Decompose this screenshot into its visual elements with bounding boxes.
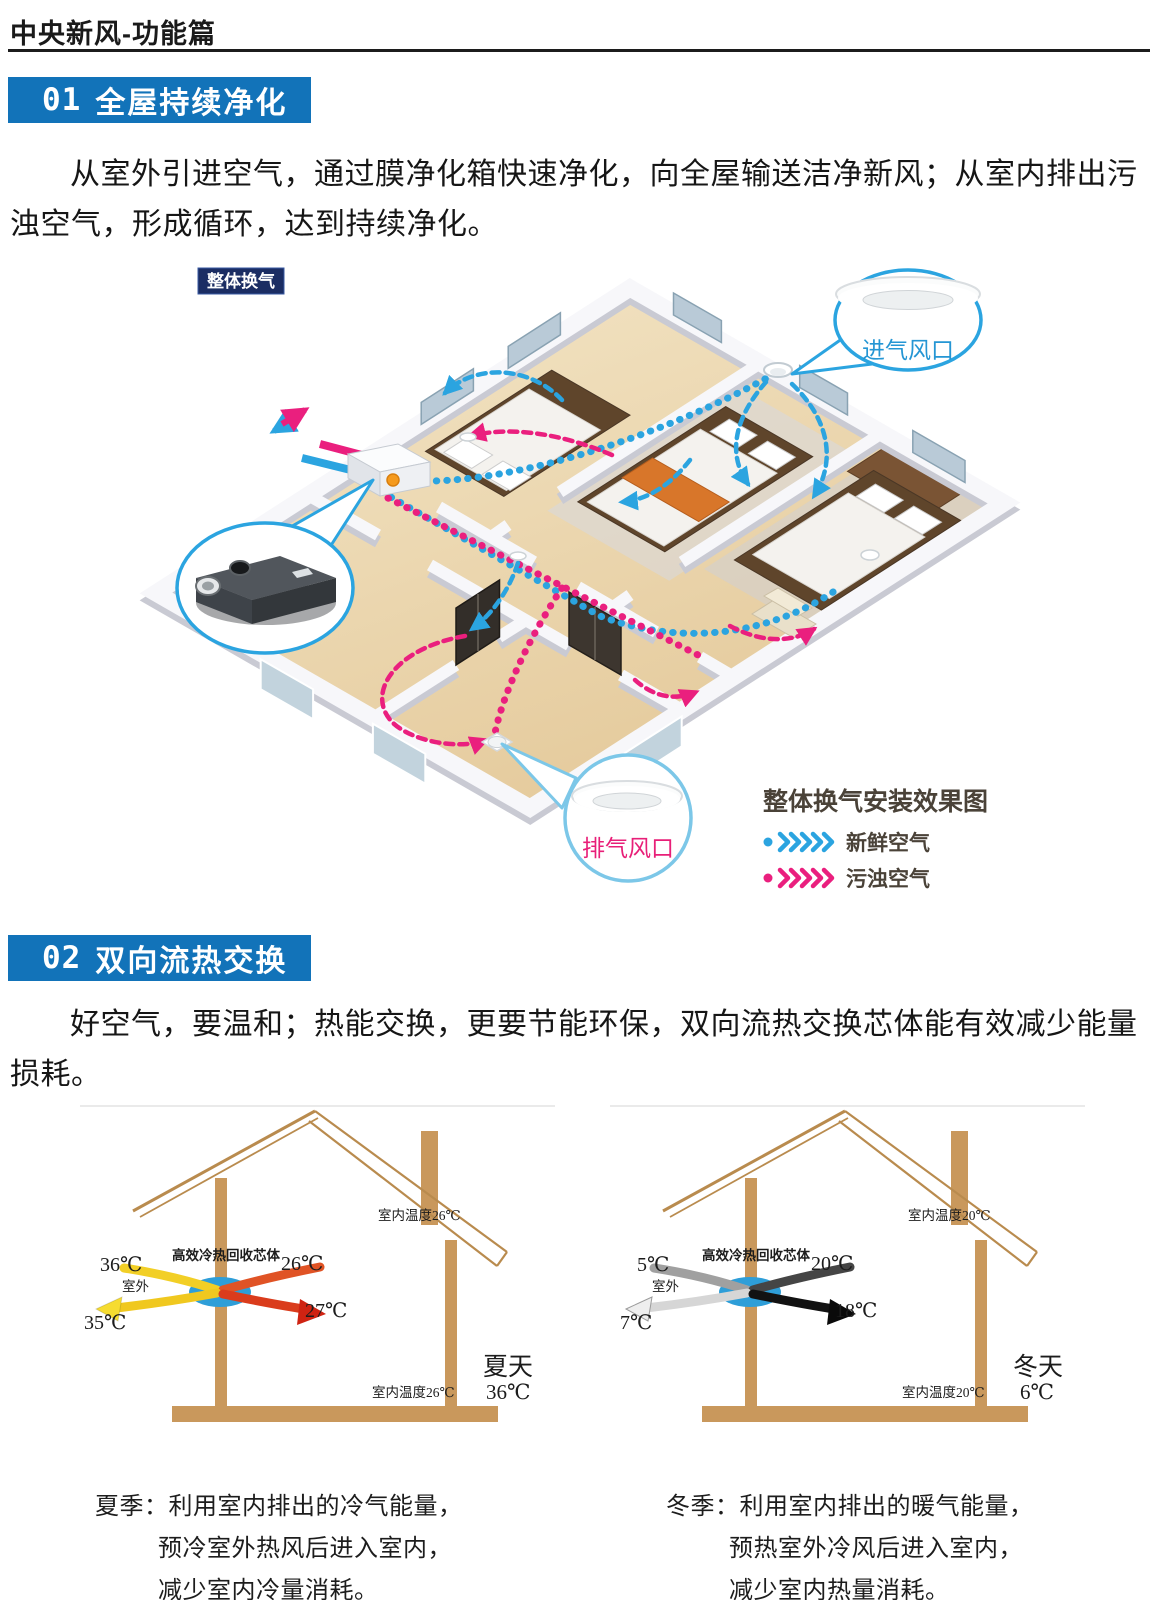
season-temp: 36℃ [486, 1380, 531, 1404]
winter-heat-exchange-diagram: 高效冷热回收芯体 5℃ 室外 7℃ 20℃ 18℃ 室内温度20℃ 室内温度20… [590, 1078, 1090, 1438]
page-title: 中央新风-功能篇 [10, 12, 216, 51]
temp-supply: 27℃ [305, 1300, 347, 1322]
temp-exhaust-out: 35℃ [84, 1312, 126, 1334]
temp-exhaust-out: 7℃ [620, 1312, 652, 1334]
winter-caption-line1: 冬季：利用室内排出的暖气能量， [666, 1486, 1034, 1528]
summer-heat-exchange-diagram: 高效冷热回收芯体 36℃ 室外 35℃ 26℃ 27℃ 室内温度26℃ 室内温度… [60, 1078, 560, 1438]
section1-banner: 01 全屋持续净化 [8, 77, 311, 123]
outdoor-label: 室外 [652, 1278, 680, 1294]
section1-paragraph: 从室外引进空气，通过膜净化箱快速净化，向全屋输送洁净新风；从室内排出污浊空气，形… [10, 150, 1150, 250]
legend-title: 整体换气安装效果图 [763, 787, 988, 816]
whole-house-ventilation-illustration: 整体换气 进气风口 排气风口 [130, 248, 1040, 908]
right-post [975, 1240, 987, 1406]
summer-caption-line2: 预冷室外热风后进入室内， [158, 1528, 463, 1570]
exhaust-callout-label: 排气风口 [582, 835, 674, 861]
intake-callout-label: 进气风口 [862, 337, 954, 363]
section2-banner: 02 双向流热交换 [8, 935, 311, 981]
winter-caption-line3: 减少室内热量消耗。 [729, 1570, 1034, 1600]
summer-caption-line3: 减少室内冷量消耗。 [158, 1570, 463, 1600]
outdoor-label: 室外 [122, 1278, 149, 1294]
section2-number: 02 [42, 940, 81, 976]
brochure-page: 中央新风-功能篇 01 全屋持续净化 从室外引进空气，通过膜净化箱快速净化，向全… [0, 0, 1159, 1600]
season-temp: 6℃ [1020, 1380, 1054, 1404]
unit-port-dark [230, 561, 250, 575]
floor-indoor-temp: 室内温度20℃ [902, 1384, 985, 1400]
header-rule [8, 49, 1150, 52]
legend-polluted-arrow [768, 870, 832, 886]
right-post [445, 1240, 457, 1406]
season-name: 冬天 [1013, 1353, 1063, 1381]
temp-room-top: 26℃ [281, 1253, 323, 1275]
section1-title: 全屋持续净化 [95, 78, 287, 122]
core-label: 高效冷热回收芯体 [172, 1247, 280, 1263]
legend-fresh-label: 新鲜空气 [846, 831, 930, 855]
floor-beam [702, 1406, 1028, 1422]
temp-outdoor-in: 5℃ [637, 1254, 669, 1276]
section1-number: 01 [42, 82, 81, 118]
summer-caption: 夏季：利用室内排出的冷气能量， 预冷室外热风后进入室内， 减少室内冷量消耗。 [95, 1486, 463, 1600]
season-name: 夏天 [483, 1354, 533, 1381]
roof-indoor-temp: 室内温度26℃ [378, 1207, 461, 1223]
temp-supply: 18℃ [835, 1300, 877, 1322]
intake-callout: 进气风口 [792, 270, 981, 374]
temp-outdoor-in: 36℃ [100, 1254, 142, 1276]
floor-indoor-temp: 室内温度26℃ [372, 1384, 455, 1400]
temp-room-top: 20℃ [811, 1253, 853, 1275]
legend: 整体换气安装效果图 新鲜空气 污浊空气 [763, 787, 988, 891]
legend-fresh-arrow [768, 834, 832, 850]
section2-title: 双向流热交换 [95, 936, 287, 980]
unit-indicator-light [387, 474, 399, 486]
floor-beam [172, 1406, 498, 1422]
summer-caption-line1: 夏季：利用室内排出的冷气能量， [95, 1486, 463, 1528]
legend-polluted-label: 污浊空气 [846, 867, 930, 891]
winter-caption: 冬季：利用室内排出的暖气能量， 预热室外冷风后进入室内， 减少室内热量消耗。 [666, 1486, 1034, 1600]
diagram-badge: 整体换气 [198, 268, 284, 294]
diagram-badge-label: 整体换气 [207, 271, 275, 291]
winter-caption-line2: 预热室外冷风后进入室内， [729, 1528, 1034, 1570]
core-label: 高效冷热回收芯体 [702, 1247, 810, 1263]
roof-indoor-temp: 室内温度20℃ [908, 1207, 991, 1223]
